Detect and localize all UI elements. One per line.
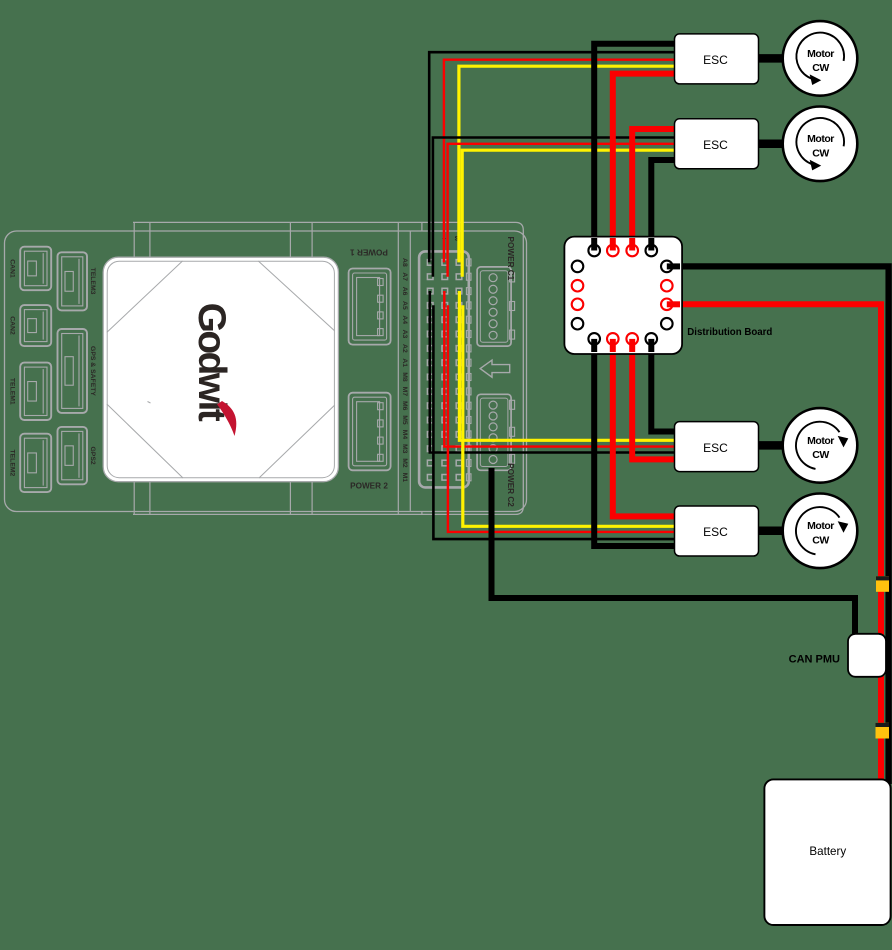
svg-text:CW: CW: [812, 534, 829, 546]
svg-text:A2: A2: [401, 344, 408, 353]
svg-text:GPS & SAFETY: GPS & SAFETY: [89, 346, 96, 396]
svg-text:CAN1: CAN1: [9, 259, 16, 278]
svg-text:CAN2: CAN2: [9, 316, 16, 335]
svg-text:CW: CW: [812, 449, 829, 461]
svg-text:Battery: Battery: [809, 845, 846, 858]
svg-text:M8: M8: [401, 372, 408, 382]
svg-text:POWER C2: POWER C2: [506, 463, 515, 507]
svg-text:M6: M6: [401, 401, 408, 411]
svg-text:Motor: Motor: [807, 133, 834, 145]
svg-text:A1: A1: [401, 358, 408, 367]
svg-text:TELEM3: TELEM3: [89, 268, 96, 295]
svg-text:CW: CW: [812, 62, 829, 74]
svg-text:A8: A8: [401, 258, 408, 267]
svg-text:CAN PMU: CAN PMU: [789, 654, 840, 666]
svg-text:TELEM1: TELEM1: [9, 378, 16, 405]
svg-text:A3: A3: [401, 330, 408, 339]
svg-text:M2: M2: [401, 458, 408, 468]
svg-text:M7: M7: [401, 387, 408, 397]
svg-text:ESC: ESC: [703, 441, 728, 455]
svg-text:POWER 1: POWER 1: [350, 248, 388, 257]
svg-text:ESC: ESC: [703, 138, 728, 152]
svg-text:ESC: ESC: [703, 525, 728, 539]
svg-text:M3: M3: [401, 444, 408, 454]
svg-text:Godwit: Godwit: [190, 303, 233, 422]
svg-text:M4: M4: [401, 430, 408, 440]
svg-text:TELEM2: TELEM2: [9, 449, 16, 476]
svg-text:A4: A4: [401, 315, 408, 324]
svg-text:CW: CW: [812, 147, 829, 159]
svg-text:GPS2: GPS2: [89, 447, 96, 465]
svg-text:POWER 2: POWER 2: [350, 482, 388, 491]
svg-text:Motor: Motor: [807, 48, 834, 60]
svg-text:M5: M5: [401, 415, 408, 425]
svg-text:A7: A7: [401, 272, 408, 281]
svg-text:Motor: Motor: [807, 435, 834, 447]
svg-text:POWER C1: POWER C1: [506, 237, 515, 281]
svg-text:ESC: ESC: [703, 53, 728, 67]
svg-text:M1: M1: [401, 473, 408, 483]
svg-text:Motor: Motor: [807, 520, 834, 532]
svg-text:A5: A5: [401, 301, 408, 310]
svg-text:Distribution Board: Distribution Board: [687, 327, 772, 338]
svg-text:A6: A6: [401, 287, 408, 296]
